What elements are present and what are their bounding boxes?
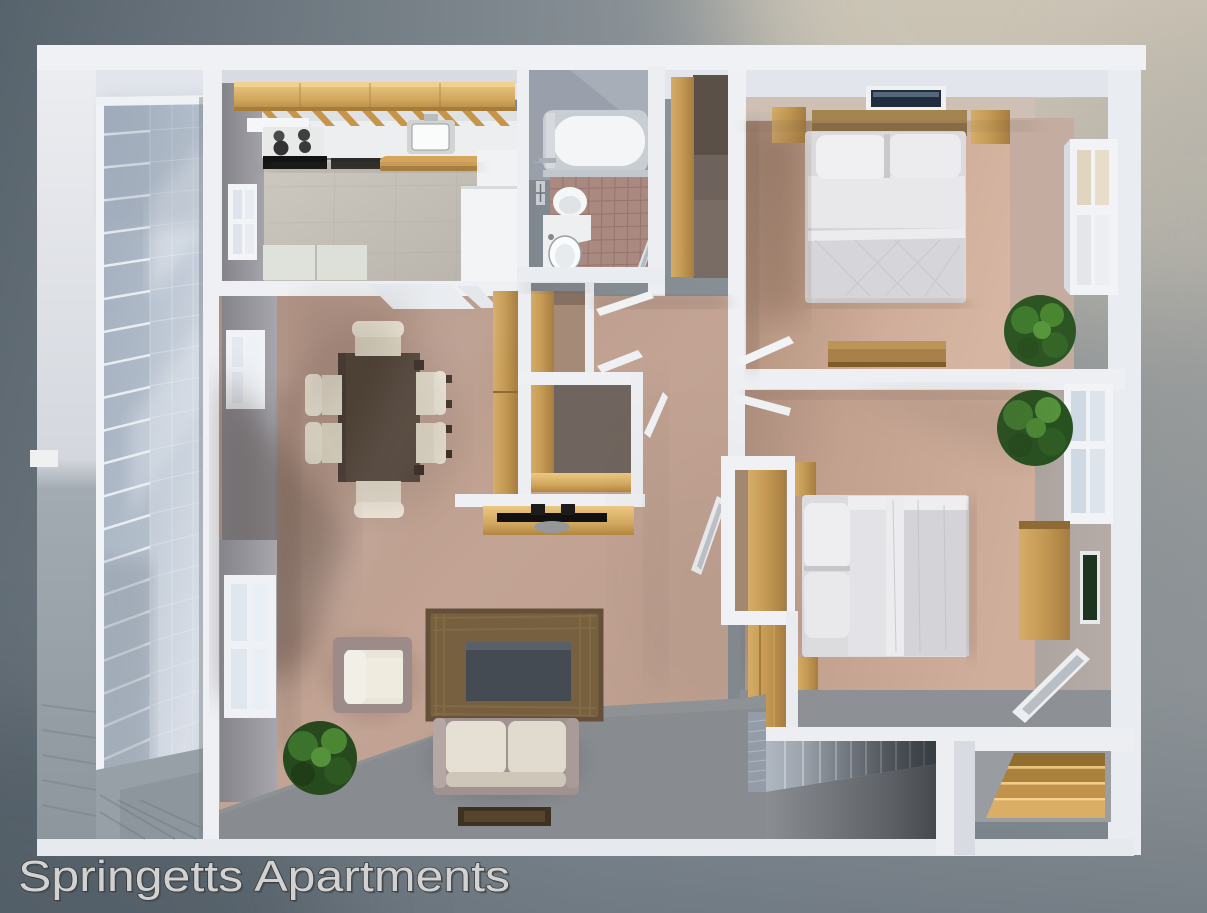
svg-text:Springetts Apartments: Springetts Apartments [18,852,510,901]
